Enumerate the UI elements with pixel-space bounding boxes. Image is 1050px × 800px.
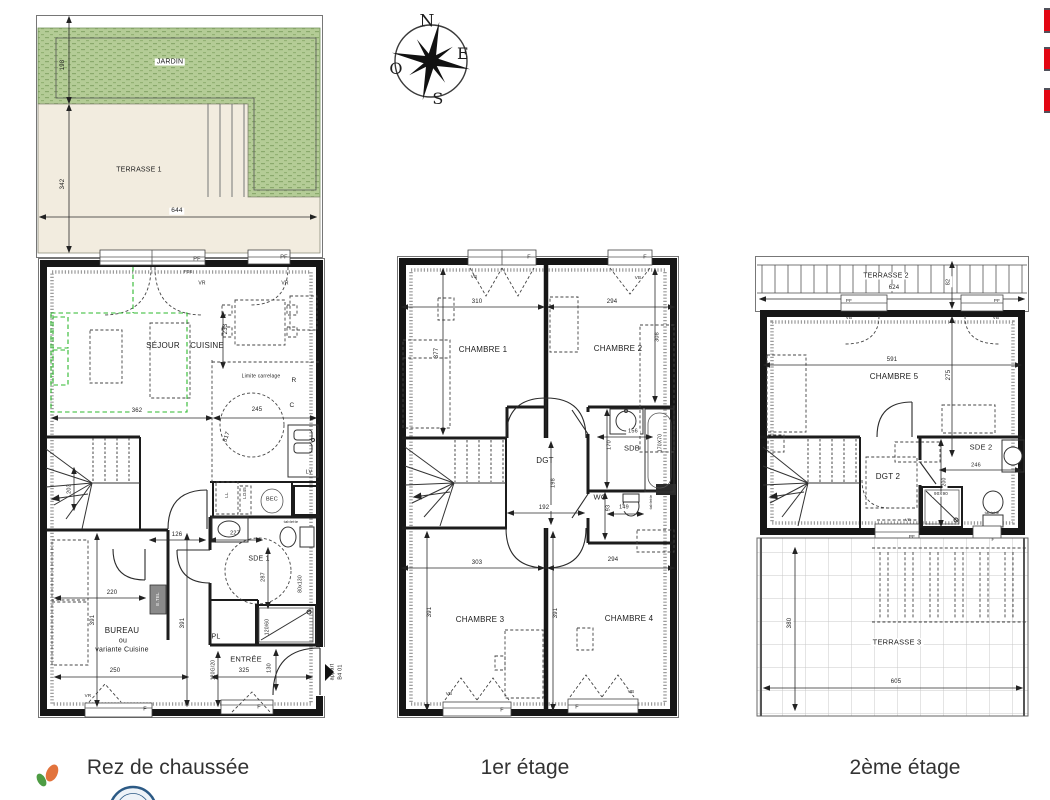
staircase-second	[763, 439, 860, 526]
duct-box	[656, 484, 676, 495]
staircase-ground	[46, 438, 140, 529]
caption-first-floor: 1er étage	[481, 756, 570, 780]
first-floor-plan	[398, 250, 679, 718]
floorplan-page: JARDINTERRASSE 1198342644PFPFF08VRVRSÉJO…	[0, 0, 1050, 800]
site-plan	[37, 16, 323, 258]
floorplan-drawing	[0, 0, 1050, 800]
terrace3-area	[757, 538, 1028, 716]
caption-ground-floor: Rez de chaussée	[87, 756, 249, 780]
compass-rose	[392, 22, 470, 100]
entrance-marker	[325, 664, 334, 681]
terrace2-railing	[762, 265, 1022, 293]
stamp-seal	[110, 787, 156, 800]
second-floor-plan	[756, 257, 1029, 717]
caption-second-floor: 2ème étage	[850, 756, 961, 780]
red-bars	[1044, 8, 1050, 113]
etel-box	[150, 585, 166, 614]
leaf-logo	[35, 763, 61, 789]
staircase-first	[405, 440, 506, 526]
ground-floor-plan	[39, 250, 335, 718]
